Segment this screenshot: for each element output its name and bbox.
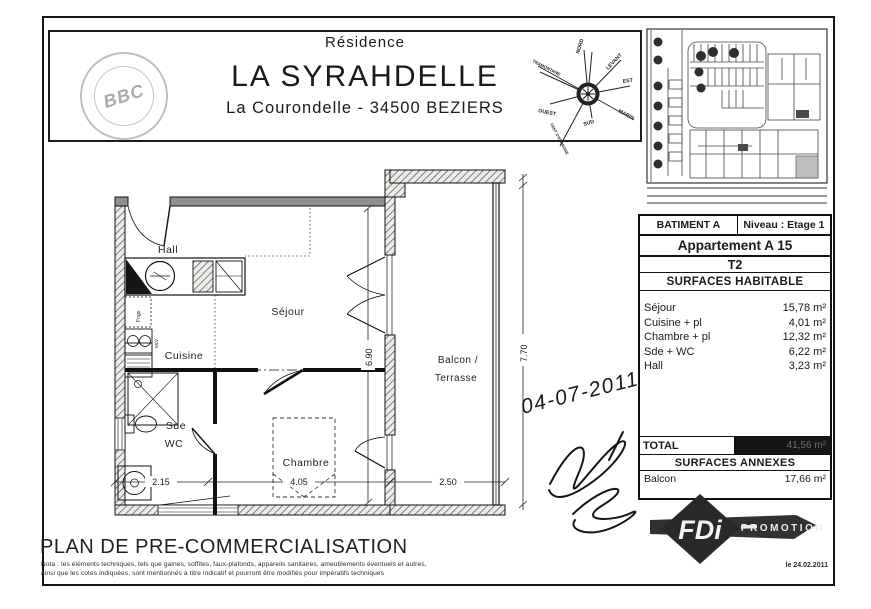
page-title: LA SYRAHDELLE bbox=[150, 60, 580, 94]
room-label-hall: Hall bbox=[158, 244, 178, 256]
fdi-promotion-logo: FDi PROMOTION bbox=[646, 492, 828, 566]
surface-row: Sde + WC 6,22 m² bbox=[644, 345, 826, 360]
footer-note-line2: ainsi que les cotes indiquées, sont ment… bbox=[41, 570, 384, 577]
surface-label: Sde + WC bbox=[644, 345, 694, 360]
surface-row: Hall 3,23 m² bbox=[644, 359, 826, 374]
annexe-label: Balcon bbox=[644, 473, 676, 485]
header: Résidence LA SYRAHDELLE La Courondelle -… bbox=[150, 34, 580, 118]
dim-chambre-width: 4.05 bbox=[290, 477, 308, 487]
dim-sejour-depth: 6.90 bbox=[364, 348, 374, 366]
building-level-row: BATIMENT A Niveau : Etage 1 bbox=[640, 216, 830, 236]
total-value: 41,56 m² bbox=[734, 437, 830, 454]
building-cell: BATIMENT A bbox=[640, 216, 738, 234]
sink-label: MLV bbox=[154, 339, 159, 348]
compass-label-e: EST bbox=[622, 78, 634, 85]
surface-row: Séjour 15,78 m² bbox=[644, 301, 826, 316]
surface-row: Cuisine + pl 4,01 m² bbox=[644, 316, 826, 331]
dim-balcon-width: 2.50 bbox=[439, 477, 457, 487]
compass-label-sw: VENT D'ESPAGNE bbox=[549, 122, 570, 155]
balcony-railing bbox=[493, 183, 499, 505]
bbc-stamp: BBC bbox=[80, 52, 168, 140]
surface-label: Séjour bbox=[644, 301, 676, 316]
logo-brand-text: FDi bbox=[678, 515, 722, 545]
compass-label-nw: TRAMONTANE bbox=[532, 58, 562, 77]
signature-scribble bbox=[549, 432, 635, 532]
address-line: La Courondelle - 34500 BEZIERS bbox=[150, 99, 580, 118]
room-label-wc: WC bbox=[165, 438, 184, 450]
scanned-floorplan-page: Résidence LA SYRAHDELLE La Courondelle -… bbox=[0, 0, 871, 609]
total-label: TOTAL bbox=[640, 437, 734, 454]
total-row: TOTAL 41,56 m² bbox=[640, 436, 830, 455]
document-date: le 24.02.2011 bbox=[742, 562, 828, 569]
surface-value: 6,22 m² bbox=[789, 345, 826, 360]
compass-rose: NORD LEVANT EST MARIN SUD VENT D'ESPAGNE… bbox=[526, 38, 652, 160]
room-label-balcon-1: Balcon / bbox=[438, 355, 478, 366]
compass-label-se: MARIN bbox=[617, 108, 635, 121]
floor-plan: Frigo MLV bbox=[98, 152, 528, 532]
room-label-cuisine: Cuisine bbox=[165, 350, 204, 362]
surfaces-list: Séjour 15,78 m² Cuisine + pl 4,01 m² Cha… bbox=[640, 291, 830, 436]
annexes-title: SURFACES ANNEXES bbox=[640, 455, 830, 471]
dim-sde-width: 2.15 bbox=[152, 477, 170, 487]
surface-value: 12,32 m² bbox=[783, 330, 826, 345]
compass-label-ne: LEVANT bbox=[605, 52, 624, 71]
type-row: T2 bbox=[640, 257, 830, 273]
compass-label-w: OUEST bbox=[538, 108, 558, 118]
room-label-chambre: Chambre bbox=[283, 457, 330, 469]
plan-type-title: PLAN DE PRE-COMMERCIALISATION bbox=[40, 536, 408, 559]
water-heater-closet bbox=[125, 258, 245, 295]
surface-value: 4,01 m² bbox=[789, 316, 826, 331]
surface-value: 3,23 m² bbox=[789, 359, 826, 374]
annexe-row: Balcon 17,66 m² bbox=[640, 471, 830, 487]
bbc-stamp-ring: BBC bbox=[94, 66, 154, 126]
dim-facade: 7.70 bbox=[519, 344, 528, 362]
annexe-value: 17,66 m² bbox=[785, 473, 826, 485]
fridge-label: Frigo bbox=[136, 310, 142, 322]
residence-label: Résidence bbox=[150, 34, 580, 51]
room-label-sejour: Séjour bbox=[271, 306, 304, 318]
surfaces-title-row: SURFACES HABITABLE bbox=[640, 273, 830, 291]
site-map bbox=[646, 28, 828, 210]
surface-label: Hall bbox=[644, 359, 663, 374]
surface-label: Chambre + pl bbox=[644, 330, 710, 345]
logo-tagline-text: PROMOTION bbox=[741, 523, 825, 534]
surface-value: 15,78 m² bbox=[783, 301, 826, 316]
surface-label: Cuisine + pl bbox=[644, 316, 702, 331]
apartment-row: Appartement A 15 bbox=[640, 236, 830, 257]
room-label-sde: Sde bbox=[166, 420, 186, 432]
room-label-balcon-2: Terrasse bbox=[435, 373, 477, 384]
bbc-stamp-text: BBC bbox=[101, 80, 147, 113]
handwritten-date: 04-07-2011 bbox=[519, 367, 642, 419]
level-cell: Niveau : Etage 1 bbox=[738, 219, 830, 231]
apartment-info-table: BATIMENT A Niveau : Etage 1 Appartement … bbox=[638, 214, 832, 500]
compass-label-s: SUD bbox=[583, 119, 596, 128]
footer-note-line1: Nota : les éléments techniques, tels que… bbox=[41, 561, 427, 568]
surface-row: Chambre + pl 12,32 m² bbox=[644, 330, 826, 345]
